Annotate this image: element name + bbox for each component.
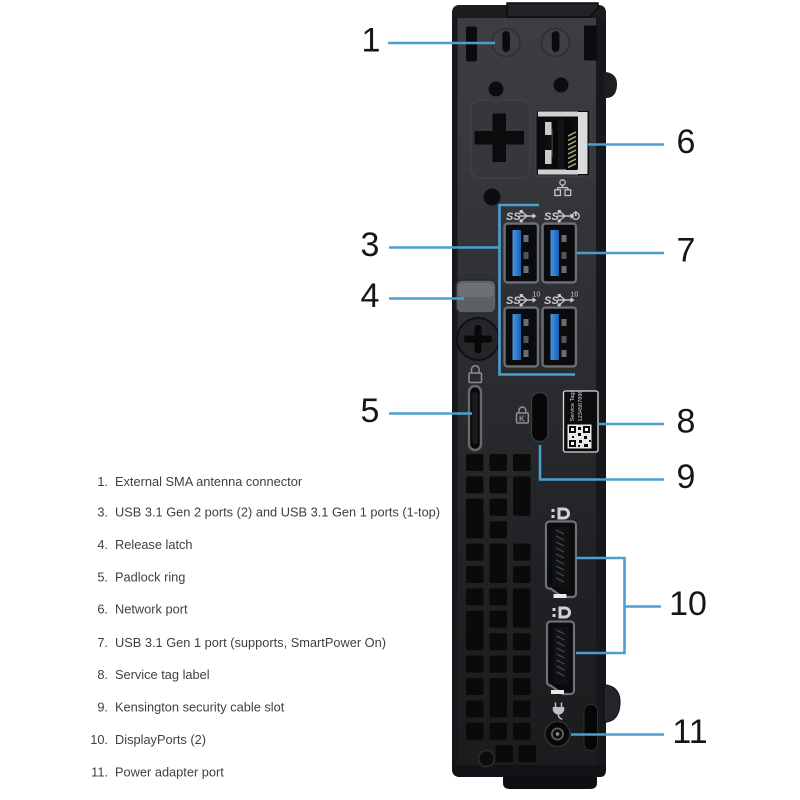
svg-text:SS: SS [506,295,521,307]
svg-text:K: K [519,415,525,424]
svg-text:SS: SS [544,295,559,307]
svg-text:Service Tag:: Service Tag: [570,390,576,421]
svg-text:8: 8 [677,403,696,441]
svg-text:4.: 4. [97,537,108,552]
svg-text:10: 10 [533,292,541,299]
svg-text:Network port: Network port [115,602,188,617]
svg-text:Service tag label: Service tag label [115,667,210,682]
svg-text:10.: 10. [90,732,108,747]
svg-text:8.: 8. [97,667,108,682]
svg-text:Padlock ring: Padlock ring [115,570,185,585]
svg-text:3.: 3. [97,505,108,520]
svg-text:SS: SS [506,211,521,223]
svg-text:USB 3.1 Gen 1 port (supports,: USB 3.1 Gen 1 port (supports, SmartPower… [115,635,386,650]
svg-text:1234567890: 1234567890 [578,390,584,421]
svg-text:4: 4 [361,277,380,315]
svg-text:5.: 5. [97,570,108,585]
svg-text:11.: 11. [91,765,108,780]
svg-text:10: 10 [669,585,707,623]
svg-text:1: 1 [362,22,381,60]
svg-text:7: 7 [677,232,696,270]
svg-text:6.: 6. [97,602,108,617]
svg-text:USB 3.1 Gen 2 ports (2) and US: USB 3.1 Gen 2 ports (2) and USB 3.1 Gen … [115,505,440,520]
svg-text:10: 10 [571,292,579,299]
svg-text:Release latch: Release latch [115,537,193,552]
svg-text:DisplayPorts (2): DisplayPorts (2) [115,732,206,747]
svg-text:5: 5 [361,392,380,430]
svg-text:1.: 1. [97,474,108,489]
svg-text:External SMA antenna connector: External SMA antenna connector [115,474,303,489]
svg-text:9: 9 [677,458,696,496]
svg-text:7.: 7. [97,635,108,650]
svg-text:Kensington security cable slot: Kensington security cable slot [115,700,285,715]
svg-text:SS: SS [544,211,559,223]
svg-text:3: 3 [361,226,380,264]
svg-text:Power adapter port: Power adapter port [115,765,224,780]
svg-text:11: 11 [672,713,707,751]
svg-text:6: 6 [677,123,696,161]
svg-text:9.: 9. [97,700,108,715]
